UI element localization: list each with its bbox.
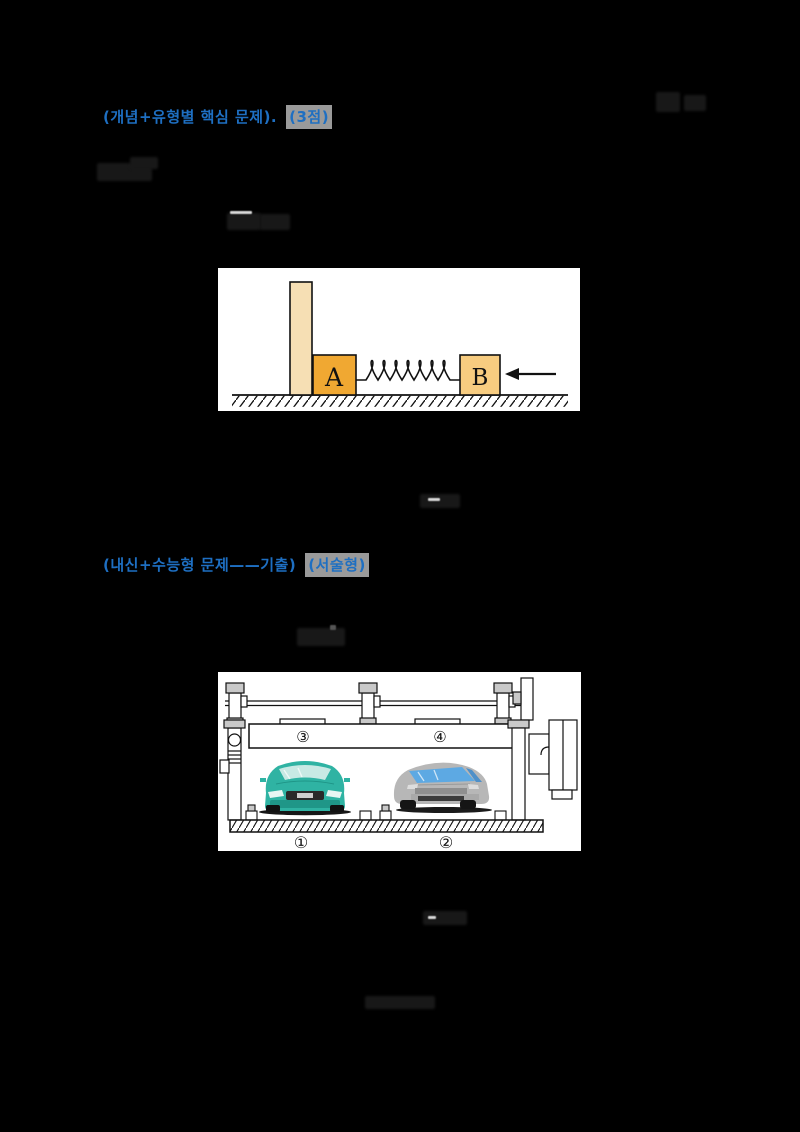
ground-platform <box>230 820 543 832</box>
section-header-2-title: (내신+수능형 문제——기출) <box>103 553 296 577</box>
faint-text-speck <box>230 211 252 214</box>
section-header-1: (개념+유형별 핵심 문제). (3점) <box>103 105 332 129</box>
faint-text-speck <box>428 498 440 501</box>
faint-text-artifact <box>130 157 158 169</box>
faint-text-artifact <box>420 494 460 508</box>
upper-platform: ③ ④ <box>249 719 521 748</box>
faint-text-artifact <box>365 996 435 1009</box>
document-page: (개념+유형별 핵심 문제). (3점) (내신+수능형 문제——기출) (서술… <box>0 0 800 1132</box>
spring-coil <box>356 361 460 381</box>
block-b: B <box>460 355 500 395</box>
faint-text-speck <box>330 625 336 630</box>
faint-text-artifact <box>297 628 345 646</box>
section-header-2-badge: (서술형) <box>305 553 369 577</box>
faint-text-speck <box>428 916 436 919</box>
faint-text-artifact <box>656 92 680 112</box>
faint-text-artifact <box>684 95 706 111</box>
section-header-1-title: (개념+유형별 핵심 문제). <box>103 105 277 129</box>
position-label-3: ③ <box>296 728 309 746</box>
position-label-4: ④ <box>433 728 446 746</box>
figure-blocks-spring: A B <box>218 268 580 411</box>
car-gray <box>394 763 492 813</box>
faint-text-artifact <box>260 214 290 230</box>
wall-pillar <box>290 282 312 395</box>
lift-post <box>226 683 515 724</box>
ground-hatch <box>232 395 568 407</box>
section-header-2: (내신+수능형 문제——기출) (서술형) <box>103 553 369 577</box>
faint-text-artifact <box>227 213 261 230</box>
block-a-label: A <box>324 363 344 392</box>
section-header-1-badge: (3점) <box>286 105 332 129</box>
hydraulic-unit <box>529 720 577 799</box>
position-label-2: ② <box>439 833 453 851</box>
force-arrow <box>505 368 556 380</box>
figure-parking-lift: ③ ④ <box>218 672 581 851</box>
position-label-1: ① <box>294 833 308 851</box>
block-a: A <box>313 355 356 395</box>
block-b-label: B <box>472 365 489 391</box>
left-column <box>220 720 245 820</box>
car-teal <box>259 761 351 815</box>
